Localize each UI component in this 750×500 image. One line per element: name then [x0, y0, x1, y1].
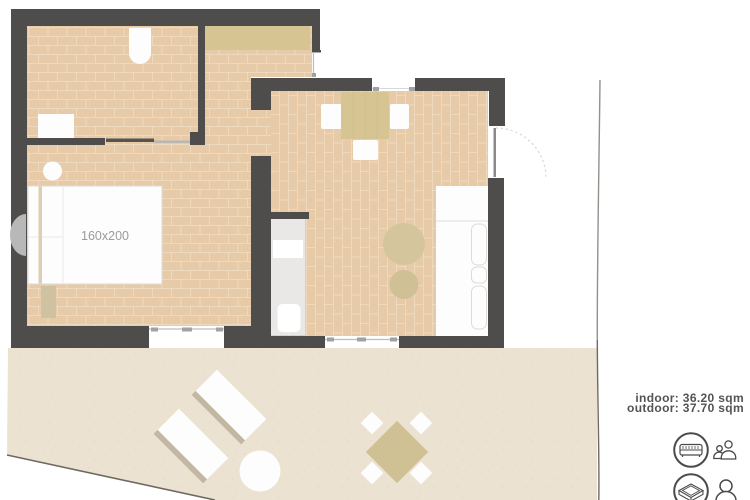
svg-text:outdoor: 37.70 sqm: outdoor: 37.70 sqm — [627, 401, 744, 415]
svg-text:160x200: 160x200 — [81, 229, 129, 243]
